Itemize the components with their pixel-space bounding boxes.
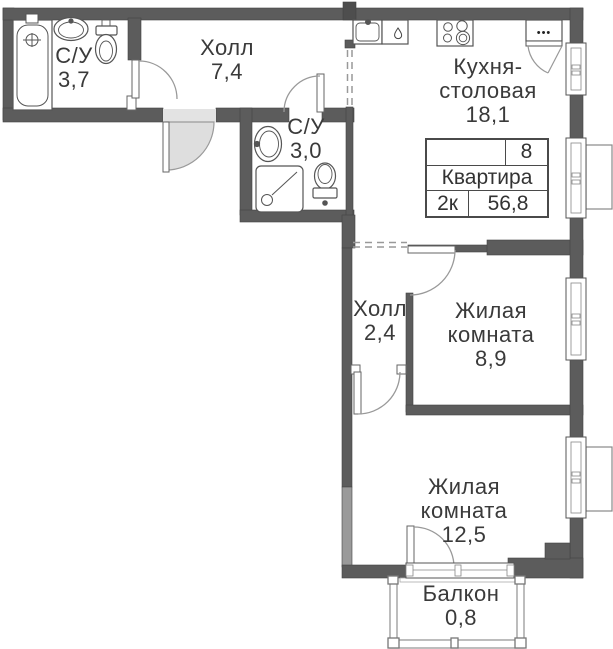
room-label-hall-mid: Холл 2,4: [353, 297, 407, 345]
stove-icon: [437, 20, 473, 46]
toilet-icon: [96, 20, 118, 64]
cabinet-dots-icon: •••: [537, 27, 552, 39]
french-balcony-box: [586, 447, 612, 511]
door-living-room-large: [351, 365, 406, 414]
door-bathroom-top: [127, 60, 177, 110]
cabinet-door-leaf: [526, 41, 562, 46]
room-name: С/У: [55, 44, 92, 68]
balcony-post: [388, 576, 398, 584]
wall: [3, 8, 583, 20]
french-balcony-box: [586, 145, 612, 209]
balcony-post: [451, 638, 458, 648]
door-living-room-small: [408, 246, 455, 295]
room-name: Жилая: [448, 299, 535, 323]
room-area: 3,0: [287, 139, 324, 163]
apartment-number: 8: [505, 140, 547, 165]
wall: [570, 95, 583, 140]
apartment-info-card: 8 Квартира 2к 56,8: [425, 138, 549, 218]
room-name: С/У: [287, 115, 324, 139]
wall-step: [545, 543, 570, 559]
apartment-rooms-count: 2к: [427, 191, 469, 216]
wall-partition: [346, 107, 353, 217]
room-name: Холл: [353, 297, 407, 321]
room-label-bathroom-mid: С/У 3,0: [287, 115, 324, 163]
wall-pier: [343, 2, 356, 20]
room-name: Кухня-: [439, 55, 537, 79]
apartment-title-row: Квартира: [427, 166, 547, 192]
wall: [570, 360, 583, 437]
room-label-living-room-small: Жилая комната 8,9: [448, 299, 535, 371]
room-area: 18,1: [439, 103, 537, 127]
floor-plan: ••• С/У 3,7 Холл 7,4 Кухня- столовая 18,…: [0, 0, 613, 649]
window-balcony-block: [400, 563, 518, 582]
room-name: столовая: [439, 79, 537, 103]
balcony-post: [515, 576, 525, 584]
window-living-room-large: [566, 437, 612, 518]
balcony-post: [388, 638, 399, 648]
wall: [508, 558, 583, 578]
room-area: 2,4: [353, 321, 407, 345]
open-plan-dashed-boundary: [348, 50, 408, 247]
room-label-bathroom-top: С/У 3,7: [55, 44, 92, 92]
door-leaf: [317, 74, 324, 112]
room-area: 12,5: [421, 523, 508, 547]
toilet-icon: [313, 163, 337, 205]
apartment-total-area: 56,8: [469, 191, 547, 216]
room-label-living-room-large: Жилая комната 12,5: [421, 475, 508, 547]
sink-icon: [54, 18, 88, 41]
door-leaf: [407, 526, 414, 567]
bathtub-icon: [13, 14, 52, 110]
room-name: комната: [421, 499, 508, 523]
wall: [570, 218, 583, 278]
room-name: Жилая: [421, 475, 508, 499]
entry-door-leaf: [163, 122, 169, 172]
room-label-kitchen: Кухня- столовая 18,1: [439, 55, 537, 127]
entry-door: [163, 109, 216, 172]
wall-neighbor: [342, 487, 352, 567]
wall: [342, 565, 412, 578]
wall: [570, 8, 583, 44]
entry-door-swing: [166, 122, 214, 170]
balcony-post: [515, 638, 526, 648]
room-name: Балкон: [423, 582, 500, 606]
wall-partition: [406, 293, 413, 412]
window-kitchen-1: [566, 43, 586, 95]
room-name: комната: [448, 323, 535, 347]
apartment-title: Квартира: [442, 166, 533, 191]
room-area: 0,8: [423, 606, 500, 630]
room-name: Холл: [200, 36, 254, 60]
window-kitchen-2: [566, 138, 612, 218]
apartment-number-row: 8: [427, 140, 547, 166]
empty-cell: [427, 140, 505, 165]
door-bathroom-mid: [284, 74, 324, 112]
wall: [216, 108, 289, 122]
door-arc: [284, 76, 320, 112]
wall: [240, 108, 252, 215]
room-area: 8,9: [448, 347, 535, 371]
door-arc: [410, 250, 455, 295]
door-leaf: [408, 246, 455, 253]
apartment-summary-row: 2к 56,8: [427, 191, 547, 216]
wall: [3, 8, 14, 120]
door-arc: [358, 372, 400, 414]
room-area: 3,7: [55, 68, 92, 92]
sink-icon: [255, 127, 282, 162]
room-label-balcony: Балкон 0,8: [423, 582, 500, 630]
window-living-room-small: [566, 278, 586, 360]
wall: [487, 240, 583, 255]
entry-threshold: [163, 109, 216, 122]
shower-icon: [256, 166, 303, 212]
door-leaf: [132, 60, 139, 98]
room-area: 7,4: [200, 60, 254, 84]
door-arc: [139, 61, 177, 99]
kitchen-sink-icon: [353, 20, 382, 44]
room-label-hall-top: Холл 7,4: [200, 36, 254, 84]
door-frame-stub: [397, 365, 406, 374]
wall: [128, 18, 141, 60]
water-drop-icon: [382, 20, 408, 44]
door-leaf: [354, 372, 361, 414]
wall: [406, 405, 583, 415]
